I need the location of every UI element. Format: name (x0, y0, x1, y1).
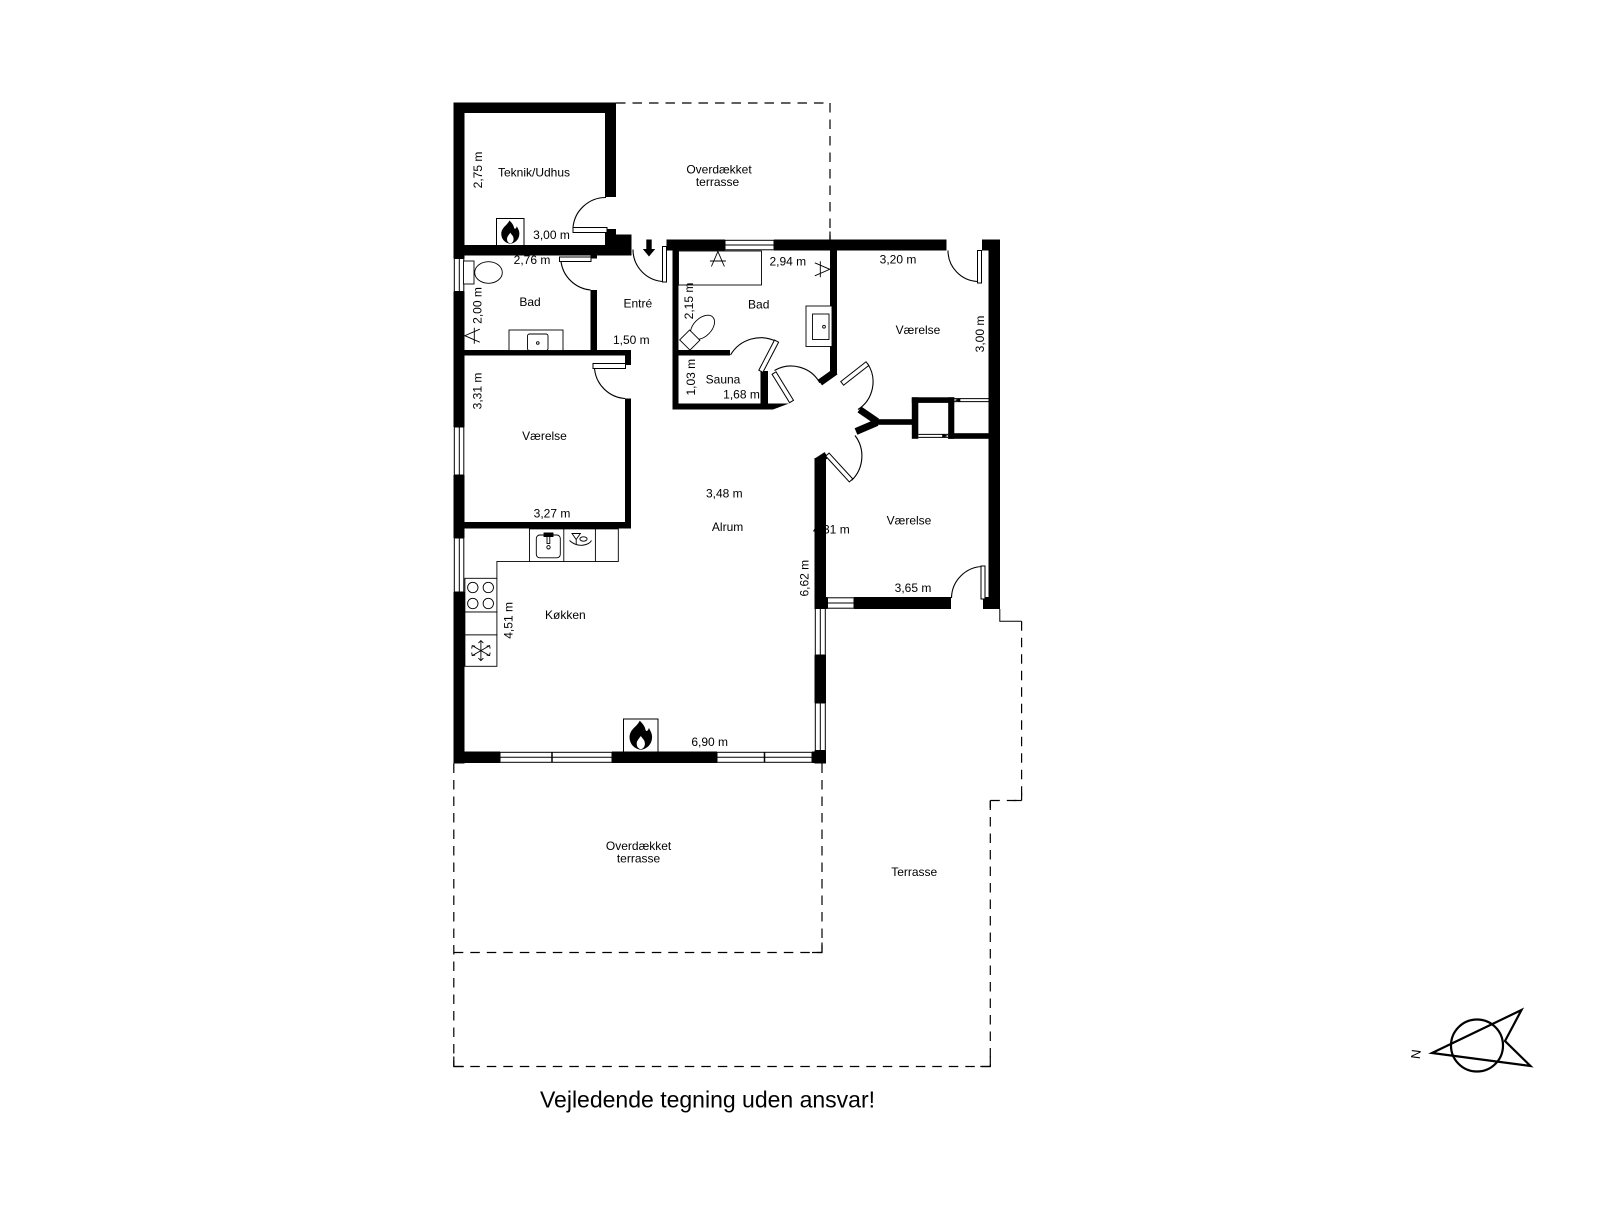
svg-text:4,51 m: 4,51 m (501, 602, 515, 639)
svg-text:Teknik/Udhus: Teknik/Udhus (498, 165, 570, 179)
svg-text:6,62 m: 6,62 m (798, 560, 812, 597)
svg-text:3,48 m: 3,48 m (706, 486, 743, 500)
svg-text:Sauna: Sauna (706, 373, 741, 387)
svg-text:2,75 m: 2,75 m (471, 152, 485, 189)
svg-text:Vejledende tegning uden ansvar: Vejledende tegning uden ansvar! (540, 1087, 875, 1113)
svg-text:3,65 m: 3,65 m (895, 581, 932, 595)
svg-text:6,90 m: 6,90 m (691, 735, 728, 749)
svg-text:Entré: Entré (623, 297, 652, 311)
svg-text:4,31 m: 4,31 m (813, 522, 850, 536)
svg-text:2,15 m: 2,15 m (682, 283, 696, 320)
svg-text:1,03 m: 1,03 m (684, 359, 698, 396)
svg-text:Værelse: Værelse (522, 429, 567, 443)
svg-text:3,00 m: 3,00 m (533, 228, 570, 242)
svg-text:2,00 m: 2,00 m (470, 287, 484, 324)
svg-text:1,50 m: 1,50 m (613, 333, 650, 347)
svg-text:Terrasse: Terrasse (891, 865, 937, 879)
svg-text:3,00 m: 3,00 m (973, 316, 987, 353)
svg-text:2,76 m: 2,76 m (514, 253, 551, 267)
svg-text:Alrum: Alrum (712, 520, 743, 534)
svg-text:Værelse: Værelse (896, 323, 941, 337)
svg-text:3,20 m: 3,20 m (880, 253, 917, 267)
svg-text:terrasse: terrasse (696, 175, 740, 189)
svg-text:Bad: Bad (748, 298, 769, 312)
svg-text:3,27 m: 3,27 m (534, 507, 571, 521)
svg-text:Køkken: Køkken (545, 608, 586, 622)
svg-text:2,94 m: 2,94 m (769, 255, 806, 269)
svg-text:1,68 m: 1,68 m (723, 387, 760, 401)
svg-text:3,31 m: 3,31 m (471, 373, 485, 410)
svg-text:Bad: Bad (519, 295, 540, 309)
svg-text:Værelse: Værelse (887, 513, 932, 527)
svg-text:N: N (1408, 1049, 1424, 1060)
svg-text:terrasse: terrasse (617, 851, 661, 865)
